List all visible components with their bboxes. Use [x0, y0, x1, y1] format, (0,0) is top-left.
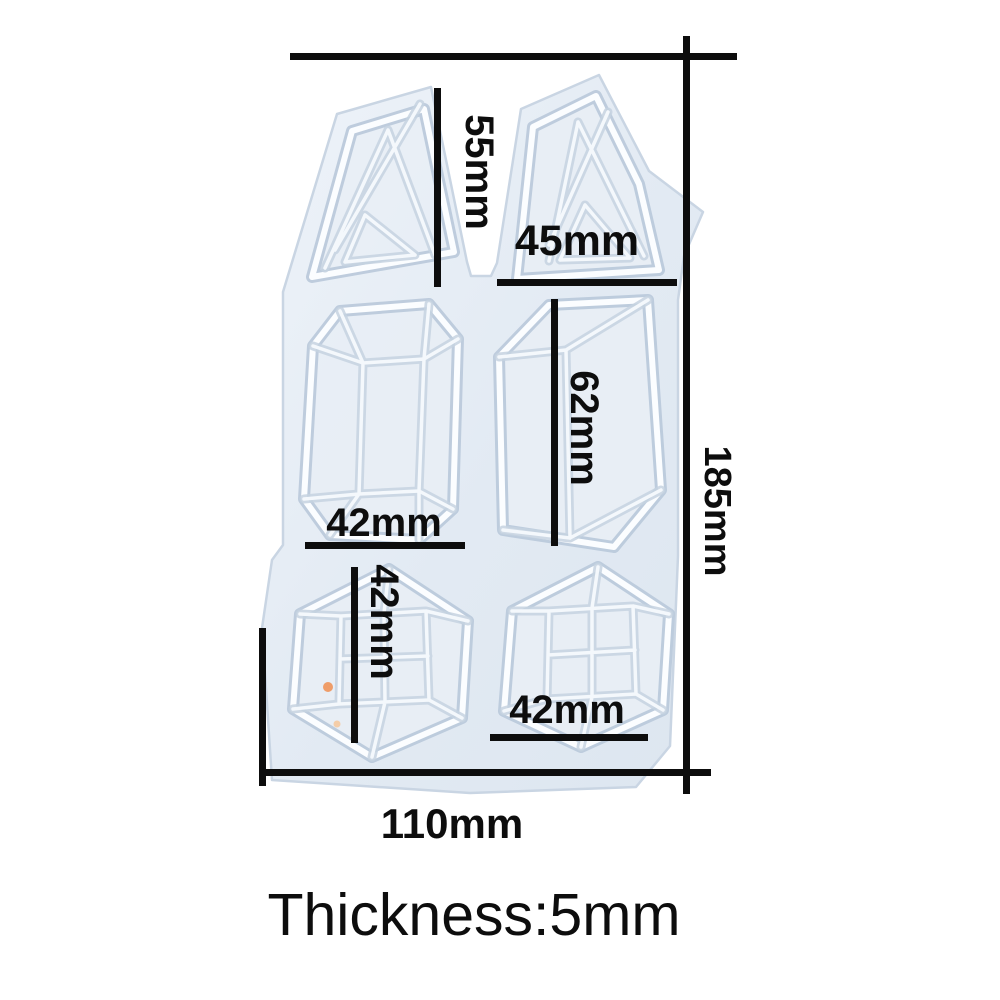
dim-line-overall-height-left [259, 628, 266, 786]
dim-label-45mm: 45mm [477, 217, 677, 265]
orange-speck-faint [334, 721, 341, 728]
orange-speck [323, 682, 333, 692]
dim-line-45mm [497, 279, 677, 286]
dim-label-42mm-bottom-left: 42mm [360, 552, 408, 692]
dim-label-42mm-middle: 42mm [284, 500, 484, 546]
dim-label-62mm: 62mm [560, 358, 608, 498]
dim-line-overall-width-bottom [262, 769, 711, 776]
dim-line-42mm-bottom-right [490, 734, 648, 741]
dim-line-55mm [434, 88, 441, 287]
dim-label-42mm-bottom-right: 42mm [467, 687, 667, 733]
dim-line-overall-width-top [290, 53, 737, 60]
dim-line-42mm-bottom-left [351, 567, 358, 743]
dim-line-62mm [551, 299, 558, 546]
product-dimension-image: 55mm 45mm 62mm 42mm 42mm 42mm 185mm 110m… [0, 0, 1000, 1000]
thickness-note: Thickness:5mm [174, 880, 774, 950]
dim-line-overall-height-right [683, 36, 690, 794]
dim-label-185mm: 185mm [693, 441, 741, 581]
dim-label-110mm: 110mm [352, 800, 552, 848]
